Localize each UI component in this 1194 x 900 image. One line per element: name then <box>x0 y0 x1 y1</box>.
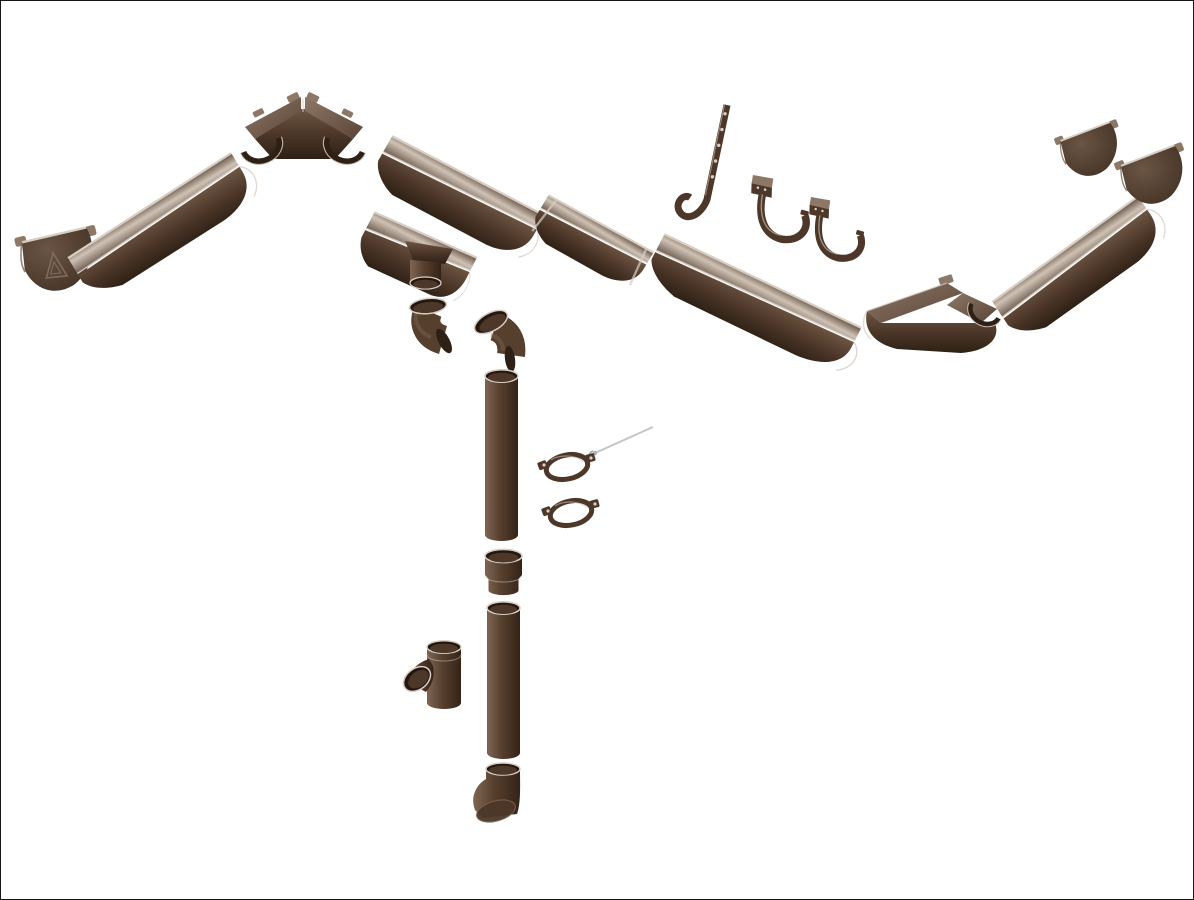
endcap-right-2 <box>1112 142 1193 212</box>
endcap-right-1 <box>1053 119 1129 183</box>
elbow-2 <box>471 306 517 373</box>
corner-inner <box>241 92 366 171</box>
downpipe-upper <box>485 370 518 541</box>
hook-long <box>677 101 728 220</box>
corner-outer <box>864 274 1001 353</box>
gutter-union <box>526 191 653 294</box>
pipe-clamp-1 <box>537 451 596 483</box>
pipe-clamp-2 <box>541 497 600 529</box>
shoe <box>473 763 520 826</box>
gutter-left <box>65 149 267 302</box>
elbow-1 <box>409 297 455 356</box>
mounting-screw <box>589 427 653 458</box>
hook-short-1 <box>750 171 811 242</box>
gutter-far-right <box>989 192 1176 344</box>
pipe-coupler <box>485 549 522 595</box>
product-diagram <box>0 0 1194 900</box>
scene <box>1 1 1193 899</box>
gutter-right <box>641 229 869 383</box>
hook-short-2 <box>808 193 866 260</box>
downpipe-lower <box>487 602 520 759</box>
tee <box>399 641 461 709</box>
